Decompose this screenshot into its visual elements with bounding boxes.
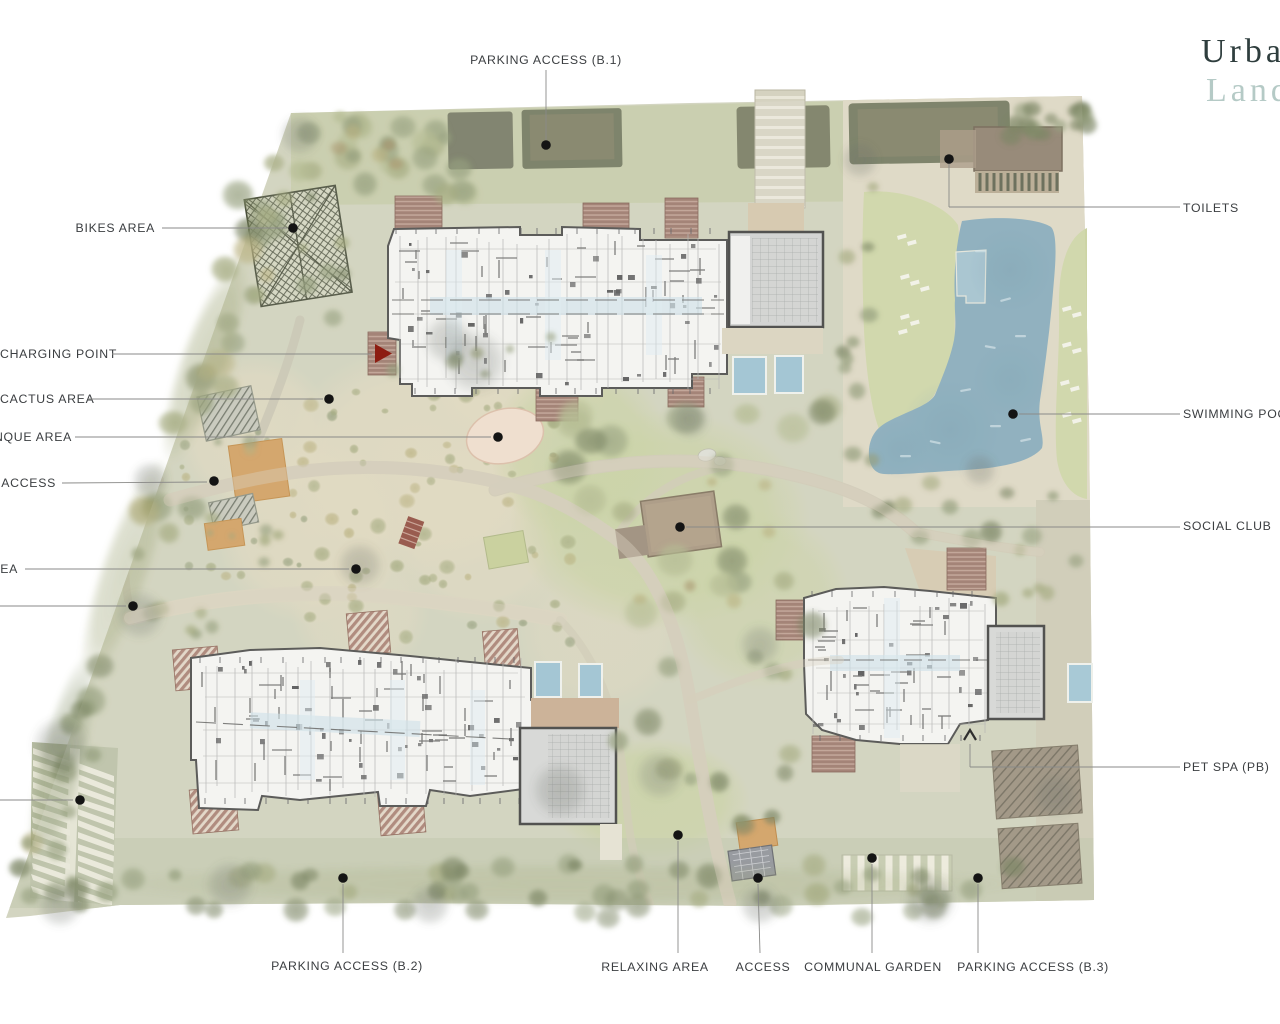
svg-text:CHARGING POINT: CHARGING POINT	[0, 347, 117, 361]
svg-text:PARKING ACCESS (B.1): PARKING ACCESS (B.1)	[470, 53, 622, 67]
svg-text:CHILL OUT AREA: CHILL OUT AREA	[0, 562, 18, 576]
svg-text:PET SPA (PB): PET SPA (PB)	[1183, 760, 1270, 774]
svg-text:SWIMMING POOL: SWIMMING POOL	[1183, 407, 1280, 421]
svg-text:RELAXING AREA: RELAXING AREA	[601, 960, 709, 974]
svg-text:PETANQUE AREA: PETANQUE AREA	[0, 430, 72, 444]
svg-text:BIKES AREA: BIKES AREA	[76, 221, 156, 235]
svg-text:Landscape: Landscape	[1206, 72, 1280, 109]
svg-text:TOILETS: TOILETS	[1183, 201, 1239, 215]
svg-text:SOCIAL CLUB: SOCIAL CLUB	[1183, 519, 1272, 533]
svg-text:PARKING ACCESS (B.2): PARKING ACCESS (B.2)	[271, 959, 423, 973]
svg-text:ACCESS: ACCESS	[736, 960, 791, 974]
svg-text:Urban: Urban	[1201, 33, 1280, 70]
svg-text:PARKING ACCESS (B.3): PARKING ACCESS (B.3)	[957, 960, 1109, 974]
svg-text:COMMUNAL GARDEN: COMMUNAL GARDEN	[804, 960, 942, 974]
svg-text:MAIN ACCESS: MAIN ACCESS	[0, 476, 56, 490]
svg-text:CACTUS AREA: CACTUS AREA	[0, 392, 95, 406]
